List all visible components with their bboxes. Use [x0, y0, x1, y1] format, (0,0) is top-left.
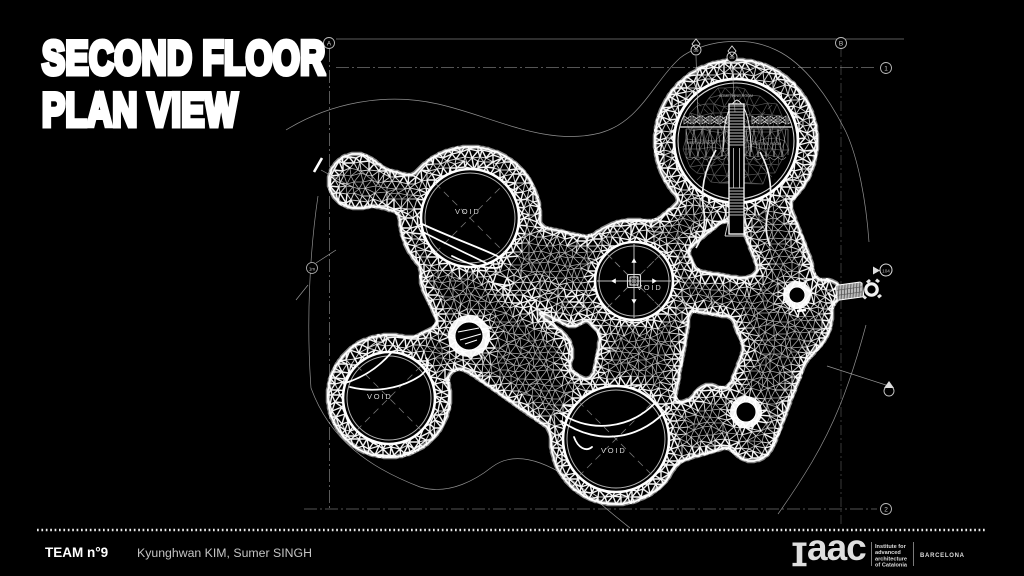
svg-text:advanced: advanced — [875, 550, 901, 556]
svg-text:Institute for: Institute for — [875, 544, 907, 550]
svg-text:of Catalonia: of Catalonia — [875, 563, 908, 569]
svg-text:aac: aac — [807, 527, 866, 568]
svg-text:architecture: architecture — [875, 556, 907, 562]
svg-text:BARCELONA: BARCELONA — [920, 553, 965, 559]
